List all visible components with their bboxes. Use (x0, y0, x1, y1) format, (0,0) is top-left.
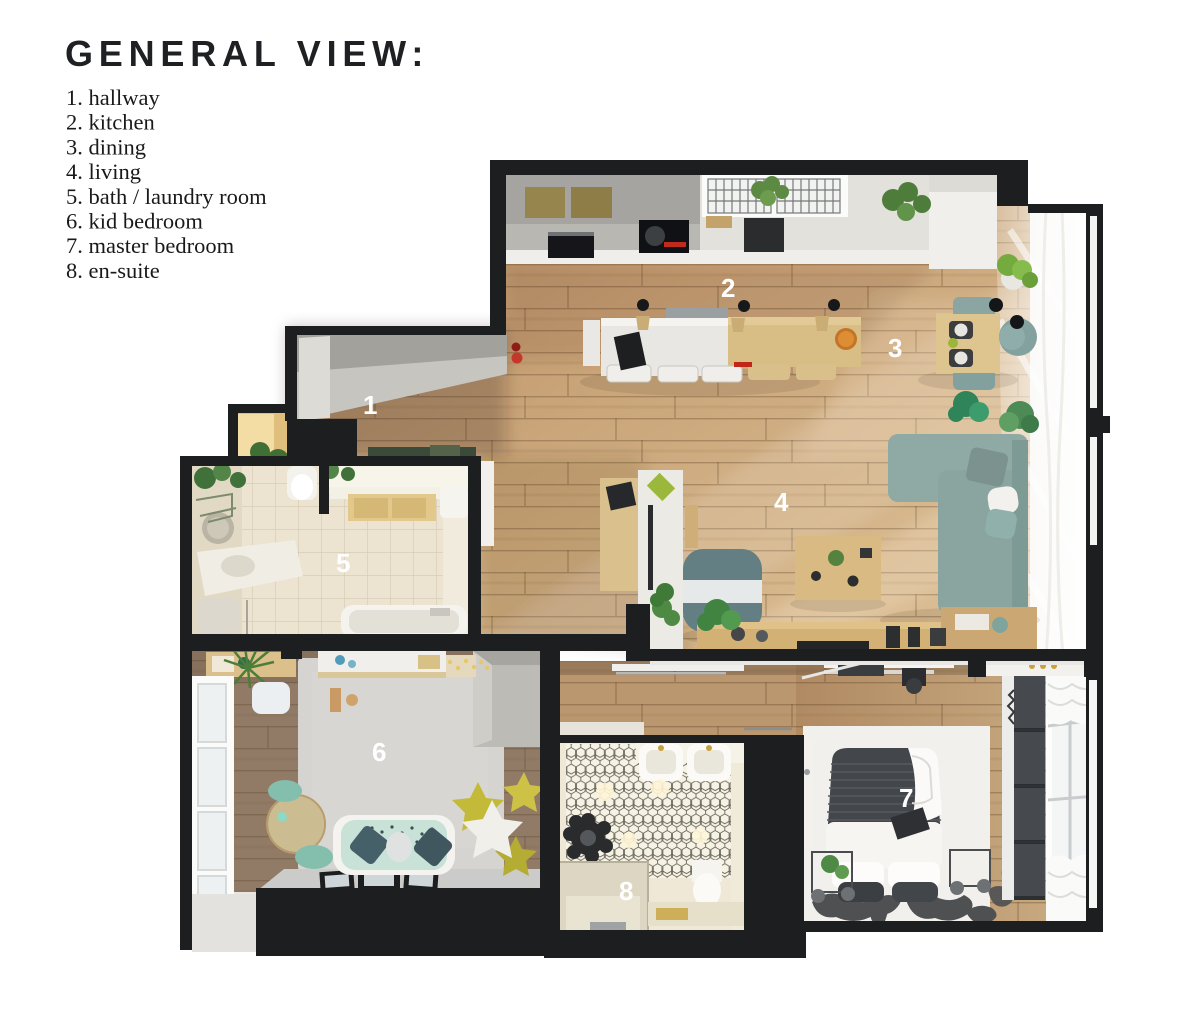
svg-text:5. bath / laundry room: 5. bath / laundry room (66, 184, 267, 209)
svg-text:7. master bedroom: 7. master bedroom (66, 233, 235, 258)
svg-text:3. dining: 3. dining (66, 134, 146, 159)
svg-text:7: 7 (899, 783, 913, 813)
svg-text:8: 8 (619, 876, 633, 906)
svg-text:1. hallway: 1. hallway (66, 85, 160, 110)
svg-text:2. kitchen: 2. kitchen (66, 110, 155, 135)
svg-text:6. kid bedroom: 6. kid bedroom (66, 209, 203, 234)
svg-text:4. living: 4. living (66, 159, 141, 184)
svg-text:5: 5 (336, 548, 350, 578)
svg-text:2: 2 (721, 273, 735, 303)
svg-text:6: 6 (372, 737, 386, 767)
svg-text:3: 3 (888, 333, 902, 363)
svg-text:4: 4 (774, 487, 789, 517)
svg-text:GENERAL VIEW:: GENERAL VIEW: (65, 33, 429, 74)
svg-text:1: 1 (363, 390, 377, 420)
svg-text:8. en-suite: 8. en-suite (66, 258, 160, 283)
